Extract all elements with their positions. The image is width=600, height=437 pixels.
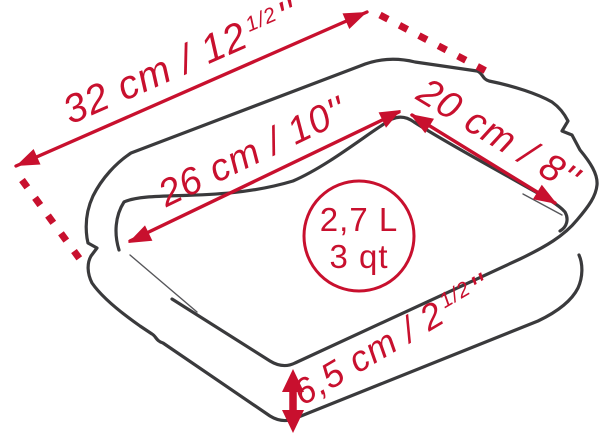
height-label: 6,5 cm / 21/2'' (286, 265, 498, 413)
dimension-annotations: 32 cm / 121/2'' 26 cm / 10'' 20 cm / 8''… (16, 0, 587, 433)
dimension-diagram-svg: 32 cm / 121/2'' 26 cm / 10'' 20 cm / 8''… (0, 0, 600, 437)
capacity-quarts-label: 3 qt (329, 238, 388, 275)
diagram-canvas: 32 cm / 121/2'' 26 cm / 10'' 20 cm / 8''… (0, 0, 600, 437)
extension-line-dashed-left (22, 180, 82, 262)
cavity-edge-accent-left (130, 255, 197, 312)
overall-length-arrowhead-right (343, 12, 368, 29)
capacity-liters-label: 2,7 L (320, 201, 398, 238)
overall-length-arrowhead-left (16, 149, 41, 166)
inner-length-arrowhead-left (128, 225, 152, 243)
overall-length-label: 32 cm / 121/2'' (56, 0, 305, 133)
